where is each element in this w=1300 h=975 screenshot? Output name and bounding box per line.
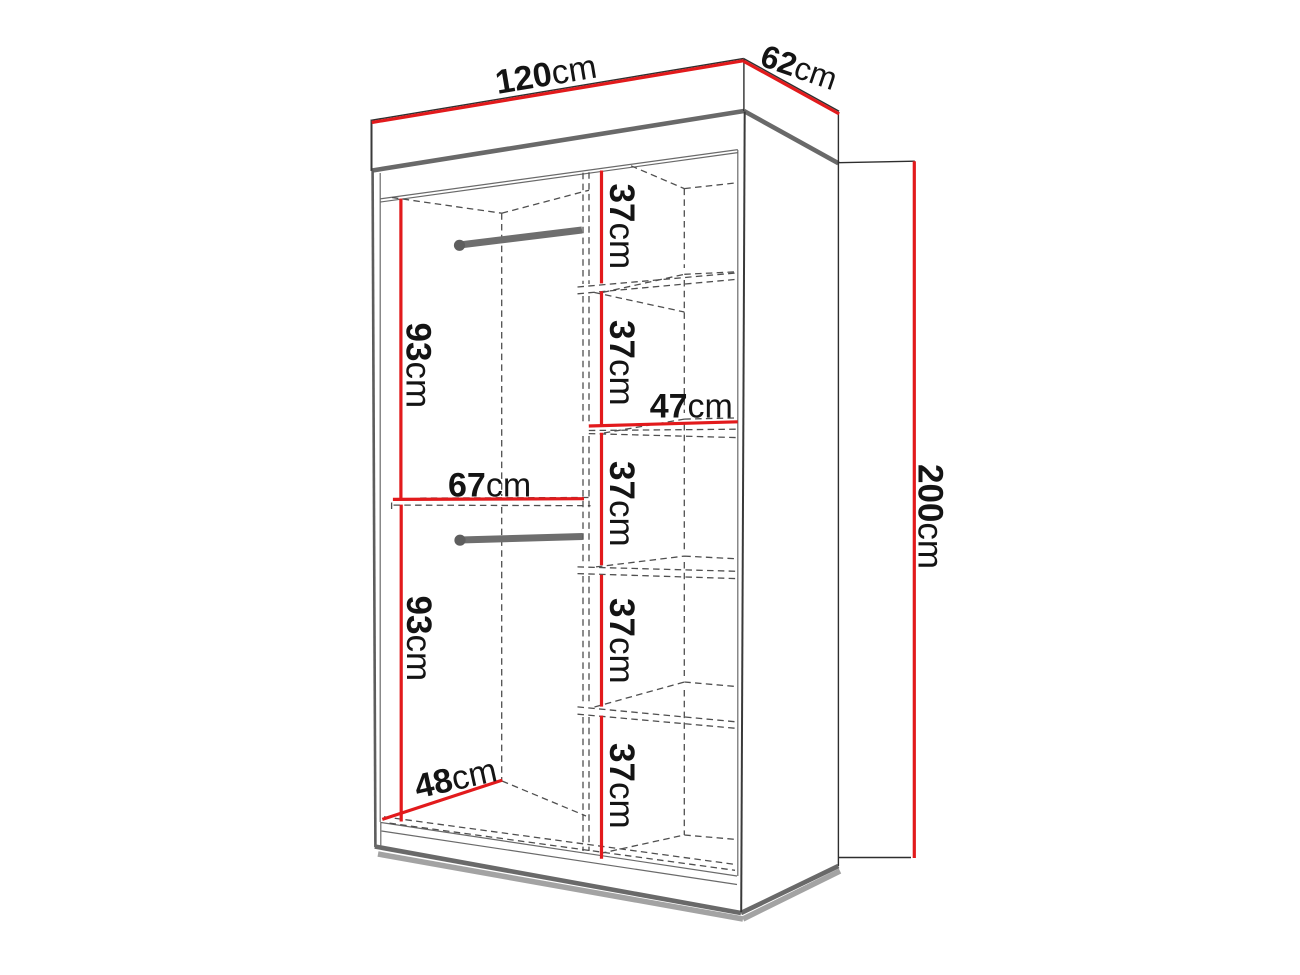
svg-text:67cm: 67cm [448,466,531,504]
svg-text:47cm: 47cm [650,387,733,425]
svg-text:37cm: 37cm [602,461,641,547]
svg-text:120cm: 120cm [493,48,600,102]
svg-text:37cm: 37cm [602,320,641,406]
svg-text:48cm: 48cm [411,751,500,806]
svg-text:200cm: 200cm [911,464,950,569]
svg-text:93cm: 93cm [399,596,438,682]
svg-text:62cm: 62cm [756,38,842,98]
svg-text:37cm: 37cm [602,184,641,270]
svg-text:93cm: 93cm [399,323,438,409]
svg-text:37cm: 37cm [602,598,641,684]
svg-text:37cm: 37cm [602,743,641,829]
